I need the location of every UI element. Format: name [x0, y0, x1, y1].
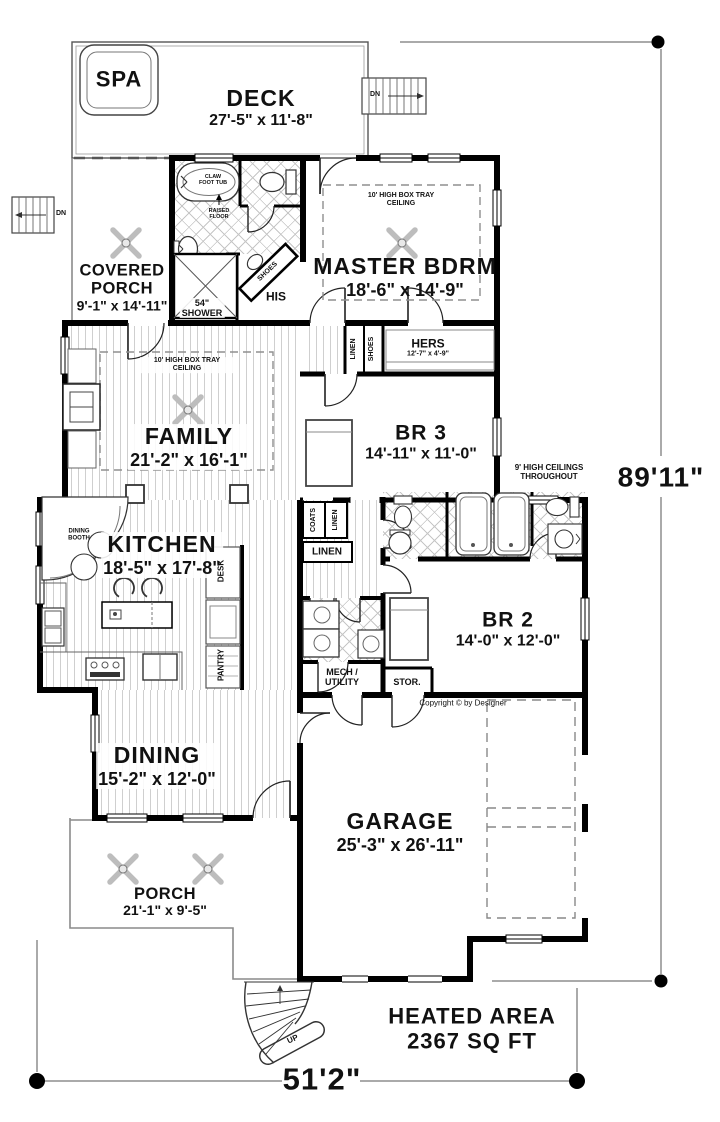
- claw-tub-label: CLAW FOOT TUB: [197, 174, 229, 186]
- bath2-toilet: [546, 497, 579, 517]
- linen-closet-label-c: LINEN: [312, 546, 342, 557]
- room-label-spa: SPA: [96, 68, 143, 93]
- coats-closet-label: COATS: [310, 508, 318, 532]
- master-tray-ceiling-note: 10' HIGH BOX TRAY CEILING: [356, 192, 446, 208]
- kitchen-sink: [42, 608, 64, 646]
- linen-closet-label-b: LINEN: [332, 510, 340, 531]
- his-closet-label: HIS: [266, 290, 286, 303]
- linen-closet-label-a: LINEN: [350, 339, 358, 360]
- desk-label: DESK: [218, 560, 227, 582]
- overall-depth-dimension: 89'11": [618, 461, 705, 492]
- range: [86, 658, 124, 680]
- pantry-label: PANTRY: [218, 649, 227, 681]
- room-label-dining: DINING 15'-2" x 12'-0": [96, 743, 218, 789]
- br3-closet: [306, 420, 352, 486]
- mech-utility-label: MECH / UTILITY: [311, 667, 373, 687]
- hers-closet-label: HERS 12'-7" x 4'-9": [407, 337, 449, 358]
- fireplace: [63, 349, 100, 468]
- room-label-deck: DECK 27'-5" x 11'-8": [209, 86, 313, 130]
- room-label-kitchen: KITCHEN 18'-5" x 17'-8": [101, 532, 223, 578]
- refrigerator: [143, 654, 177, 680]
- storage-label: STOR.: [391, 677, 422, 687]
- ceiling-height-note: 9' HIGH CEILINGS THROUGHOUT: [501, 464, 597, 482]
- family-tray-ceiling-note: 10' HIGH BOX TRAY CEILING: [140, 357, 234, 373]
- laundry-sink: [358, 630, 384, 658]
- room-label-garage: GARAGE 25'-3" x 26'-11": [337, 809, 464, 855]
- master-toilet: [260, 170, 296, 194]
- floor-plan-page: SPA DECK 27'-5" x 11'-8" DN DN COVERED P…: [0, 0, 720, 1122]
- kitchen-island: [102, 574, 172, 628]
- garage-bay-dashed: [487, 700, 575, 918]
- raised-floor-label: RAISED FLOOR: [201, 208, 237, 220]
- washer-dryer: [303, 601, 339, 657]
- room-label-family: FAMILY 21'-2" x 16'-1": [128, 424, 250, 470]
- room-label-master: MASTER BDRM 18'-6" x 14'-9": [313, 254, 497, 300]
- curved-stairs: [244, 982, 316, 1063]
- deck-stairs-dn-label: DN: [370, 91, 380, 99]
- side-stairs: [12, 197, 54, 233]
- posts: [126, 485, 248, 503]
- heated-area-note: HEATED AREA 2367 SQ FT: [388, 1004, 555, 1053]
- side-stairs-dn-label: DN: [56, 210, 66, 218]
- copyright-note: Copyright © by Designer: [419, 700, 506, 709]
- hall-bath-toilet: [394, 496, 412, 528]
- shower-label: 54" SHOWER: [180, 298, 225, 318]
- room-label-porch: PORCH 21'-1" x 9'-5": [123, 885, 207, 919]
- hall-bath-sink: [389, 530, 411, 554]
- room-label-br2: BR 2 14'-0" x 12'-0": [456, 608, 561, 649]
- overall-width-dimension: 51'2": [283, 1063, 362, 1098]
- br2-closet: [390, 598, 428, 660]
- room-label-br3: BR 3 14'-11" x 11'-0": [365, 421, 477, 462]
- shoes-closet-label: SHOES: [368, 337, 376, 362]
- dining-booth-label: DINING BOOTH: [57, 528, 101, 541]
- bath2-sink: [548, 524, 582, 554]
- room-label-covered-porch: COVERED PORCH 9'-1" x 14'-11": [68, 262, 176, 315]
